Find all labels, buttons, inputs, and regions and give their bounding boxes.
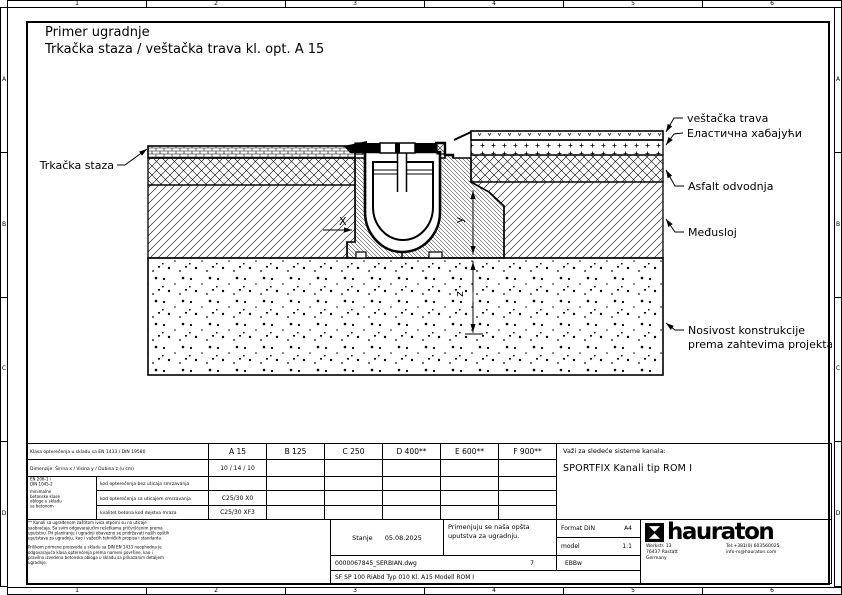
channel-foot-right	[429, 252, 442, 258]
class-header-text: E 600**	[455, 447, 484, 456]
brand-logo: hauraton	[645, 521, 831, 543]
brand-wordmark: hauraton	[667, 521, 773, 543]
ruler-label: 1	[75, 1, 79, 7]
ruler-top-cell: 4	[424, 0, 564, 8]
dimensions-row-label: Dimenzije: Širina x / Visina y / Dubina …	[26, 459, 209, 477]
load-class-row-label: Klasa opterećenja u skladu sa EN 1433 / …	[26, 443, 209, 460]
label-bearing-line1: Nosivost konstrukcije	[688, 324, 805, 337]
class-header-text: D 400**	[397, 447, 427, 456]
ruler-bottom-cell: 3	[285, 587, 425, 595]
brand-address: Werkstr. 13 76437 Rastatt Germany Tel:+3…	[646, 543, 831, 579]
leader-interlayer	[666, 219, 684, 232]
dim-z-label: z	[453, 291, 466, 297]
notes-cell: ** Kanali sa ugrađenom zaštitom ivica ot…	[26, 519, 331, 584]
ruler-bottom-cell: 2	[146, 587, 286, 595]
ruler-top-cell: 3	[285, 0, 425, 8]
ruler-right-cell: B	[834, 152, 842, 298]
ruler-bottom: 1 2 3 4 5 6	[8, 587, 842, 595]
empty-cell	[440, 490, 499, 506]
class-header-f900: F 900**	[498, 443, 557, 460]
label-elastic: Еластична хабајући	[687, 127, 802, 140]
empty-cell	[266, 476, 325, 491]
scale-cell: model 1:1	[556, 537, 641, 556]
ruler-right-cell: A	[834, 7, 842, 153]
ruler-top: 1 2 3 4 5 6	[8, 0, 842, 8]
label-interlayer: Međusloj	[688, 226, 737, 239]
brand-contact: Tel:+381(0) 603560025 info-rs@hauraton.c…	[726, 543, 779, 561]
format-value: A4	[624, 525, 632, 532]
concrete-value-3: C25/30 XF3	[208, 505, 267, 520]
concrete-row-label-1: kod opterećenja bez uticaja smrzavanja	[96, 476, 209, 491]
class-header-a15: A 15	[208, 443, 267, 460]
label-asphalt: Asfalt odvodnja	[688, 180, 773, 193]
class-header-d400: D 400**	[382, 443, 441, 460]
ruler-label: A	[2, 77, 6, 83]
ruler-label: 6	[770, 1, 774, 7]
format-label: Format DIN	[561, 525, 595, 532]
model-line-text: SF SP 100 RiAbd Typ 010 Kl. A15 Modell R…	[335, 574, 474, 581]
file-name: 0000067845_SERBIAN.dwg	[335, 560, 417, 567]
status-date: 05.08.2025	[385, 534, 422, 542]
turf-edge-trim	[454, 132, 471, 140]
dimensions-value-a15: 10 / 14 / 10	[208, 459, 267, 477]
leader-bearing	[666, 323, 684, 330]
empty-cell	[266, 505, 325, 520]
section-drawing: X y z Trkačka staza veštačka trava Еласт…	[26, 22, 832, 443]
address-line: Germany	[646, 555, 678, 561]
concrete-row-text: kod opterećenja sa uticajem smrzavanja	[100, 495, 191, 500]
empty-cell	[266, 459, 325, 477]
ruler-label: 1	[75, 588, 79, 594]
layer-asphalt-left	[148, 158, 355, 185]
class-header-text: C 250	[343, 447, 365, 456]
ruler-label: C	[836, 366, 840, 372]
instructions-cell: Primenjuju se naša opšta uputstva za ugr…	[443, 519, 557, 556]
layer-track-surface	[148, 146, 355, 158]
ruler-bottom-cell: 1	[7, 587, 147, 595]
ruler-label: 3	[353, 1, 357, 7]
leader-elastic	[666, 133, 683, 145]
ruler-label: 5	[631, 1, 635, 7]
leader-track	[117, 149, 147, 165]
ruler-label: 6	[770, 588, 774, 594]
ruler-label: 4	[492, 588, 496, 594]
empty-cell	[382, 490, 441, 506]
file-cell: 0000067845_SERBIAN.dwg 7	[330, 555, 557, 571]
leader-asphalt	[666, 170, 684, 186]
channel-foot-left	[356, 252, 366, 258]
ruler-bottom-cell: 5	[563, 587, 703, 595]
concrete-value-2: C25/30 X0	[208, 490, 267, 506]
ruler-label: B	[2, 222, 6, 228]
ruler-left-cell: D	[0, 441, 8, 587]
class-header-text: B 125	[285, 447, 307, 456]
scale-label: model	[561, 543, 580, 550]
empty-cell	[324, 490, 383, 506]
ruler-left-cell: B	[0, 152, 8, 298]
code-cell: EBBw	[556, 555, 641, 571]
format-cell: Format DIN A4	[556, 519, 641, 538]
empty-cell	[266, 490, 325, 506]
dimensions-row-text: Dimenzije: Širina x / Visina y / Dubina …	[30, 465, 134, 470]
empty-cell	[440, 505, 499, 520]
norm-line: obloge u skladu sa betonom	[30, 499, 63, 509]
ruler-label: 2	[214, 1, 218, 7]
ruler-left-cell: C	[0, 297, 8, 443]
concrete-norm-cell: EN 206-1 i DIN 1045-2 minimalne betonske…	[26, 476, 97, 520]
brand-address-left: Werkstr. 13 76437 Rastatt Germany	[646, 543, 678, 561]
hauraton-logo-icon	[645, 523, 664, 542]
class-header-text: F 900**	[513, 447, 542, 456]
ruler-top-cell: 5	[563, 0, 703, 8]
label-turf: veštačka trava	[687, 112, 768, 125]
notes-paragraph-1: ** Kanali sa ugrađenom zaštitom ivica ot…	[28, 521, 169, 542]
ruler-label: 4	[492, 1, 496, 7]
empty-cell	[498, 490, 557, 506]
layer-subgrade	[148, 258, 663, 375]
systems-value: SPORTFIX Kanali tip ROM I	[563, 463, 692, 474]
model-line-cell: SF SP 100 RiAbd Typ 010 Kl. A15 Modell R…	[330, 570, 641, 584]
leader-turf	[666, 118, 683, 132]
ruler-label: 2	[214, 588, 218, 594]
grate-right	[415, 143, 437, 153]
ruler-top-cell: 2	[146, 0, 286, 8]
label-track: Trkačka staza	[39, 159, 114, 172]
dimensions-value-text: 10 / 14 / 10	[220, 465, 255, 472]
instructions-line2: uputstva za ugradnju.	[448, 532, 530, 541]
ruler-label: B	[836, 222, 840, 228]
sheet-number: 7	[530, 560, 534, 567]
load-class-row-text: Klasa opterećenja u skladu sa EN 1433 / …	[30, 449, 145, 454]
concrete-value-1	[208, 476, 267, 491]
ruler-label: 5	[631, 588, 635, 594]
empty-cell	[440, 459, 499, 477]
ruler-right-cell: D	[834, 441, 842, 587]
ruler-top-cell: 1	[7, 0, 147, 8]
ruler-label: A	[836, 77, 840, 83]
slot-throat	[398, 152, 407, 192]
concrete-value-text: C25/30 XF3	[220, 509, 255, 516]
norm-line: DIN 1045-2	[30, 482, 63, 487]
brand-email: info-rs@hauraton.com	[726, 549, 779, 555]
dim-y-label: y	[453, 216, 466, 223]
ruler-label: D	[2, 511, 7, 517]
ruler-left: A B C D	[0, 8, 8, 587]
ruler-label: 3	[353, 588, 357, 594]
concrete-row-label-2: kod opterećenja sa uticajem smrzavanja	[96, 490, 209, 506]
empty-cell	[498, 476, 557, 491]
concrete-row-text: kvalitet betona kod dejstva mraza	[100, 510, 177, 515]
systems-cell: Važi za sledeće sisteme kanala: SPORTFIX…	[556, 443, 832, 520]
logo-cell: hauraton Werkstr. 13 76437 Rastatt Germa…	[640, 519, 832, 584]
code-value: EBBw	[565, 560, 582, 567]
title-block: Klasa opterećenja u skladu sa EN 1433 / …	[26, 443, 832, 583]
systems-heading: Važi za sledeće sisteme kanala:	[563, 447, 692, 455]
ruler-right: A B C D	[834, 8, 842, 587]
dim-x-label: X	[339, 215, 347, 228]
ruler-label: D	[836, 511, 841, 517]
empty-cell	[382, 505, 441, 520]
status-label: Stanje	[352, 534, 373, 542]
empty-cell	[498, 505, 557, 520]
layer-elastic	[471, 140, 663, 155]
ruler-bottom-cell: 6	[702, 587, 842, 595]
class-header-text: A 15	[229, 447, 246, 456]
ruler-label: C	[2, 366, 6, 372]
ruler-right-cell: C	[834, 297, 842, 443]
label-bearing-line2: prema zahtevima projekta.	[688, 338, 832, 351]
layer-turf	[471, 131, 663, 140]
ruler-top-cell: 6	[702, 0, 842, 8]
empty-cell	[324, 476, 383, 491]
empty-cell	[382, 459, 441, 477]
norm-line: minimalne betonske klase	[30, 490, 63, 500]
instructions-line1: Primenjuju se naša opšta	[448, 523, 530, 532]
class-header-e600: E 600**	[440, 443, 499, 460]
layer-asphalt-right	[471, 155, 663, 182]
layer-interlayer-left	[148, 185, 355, 258]
status-cell: Stanje 05.08.2025	[330, 519, 444, 556]
class-header-b125: B 125	[266, 443, 325, 460]
ruler-left-cell: A	[0, 7, 8, 153]
empty-cell	[324, 505, 383, 520]
grate-slot-divider	[395, 143, 400, 153]
scale-value: 1:1	[622, 543, 632, 550]
empty-cell	[440, 476, 499, 491]
class-header-c250: C 250	[324, 443, 383, 460]
concrete-row-text: kod opterećenja bez uticaja smrzavanja	[100, 481, 189, 486]
empty-cell	[382, 476, 441, 491]
concrete-value-text: C25/30 X0	[222, 495, 253, 502]
ruler-bottom-cell: 4	[424, 587, 564, 595]
empty-cell	[498, 459, 557, 477]
notes-paragraph-2: Prilikom primene proizvoda u skladu sa D…	[28, 545, 169, 566]
empty-cell	[324, 459, 383, 477]
concrete-row-label-3: kvalitet betona kod dejstva mraza	[96, 505, 209, 520]
